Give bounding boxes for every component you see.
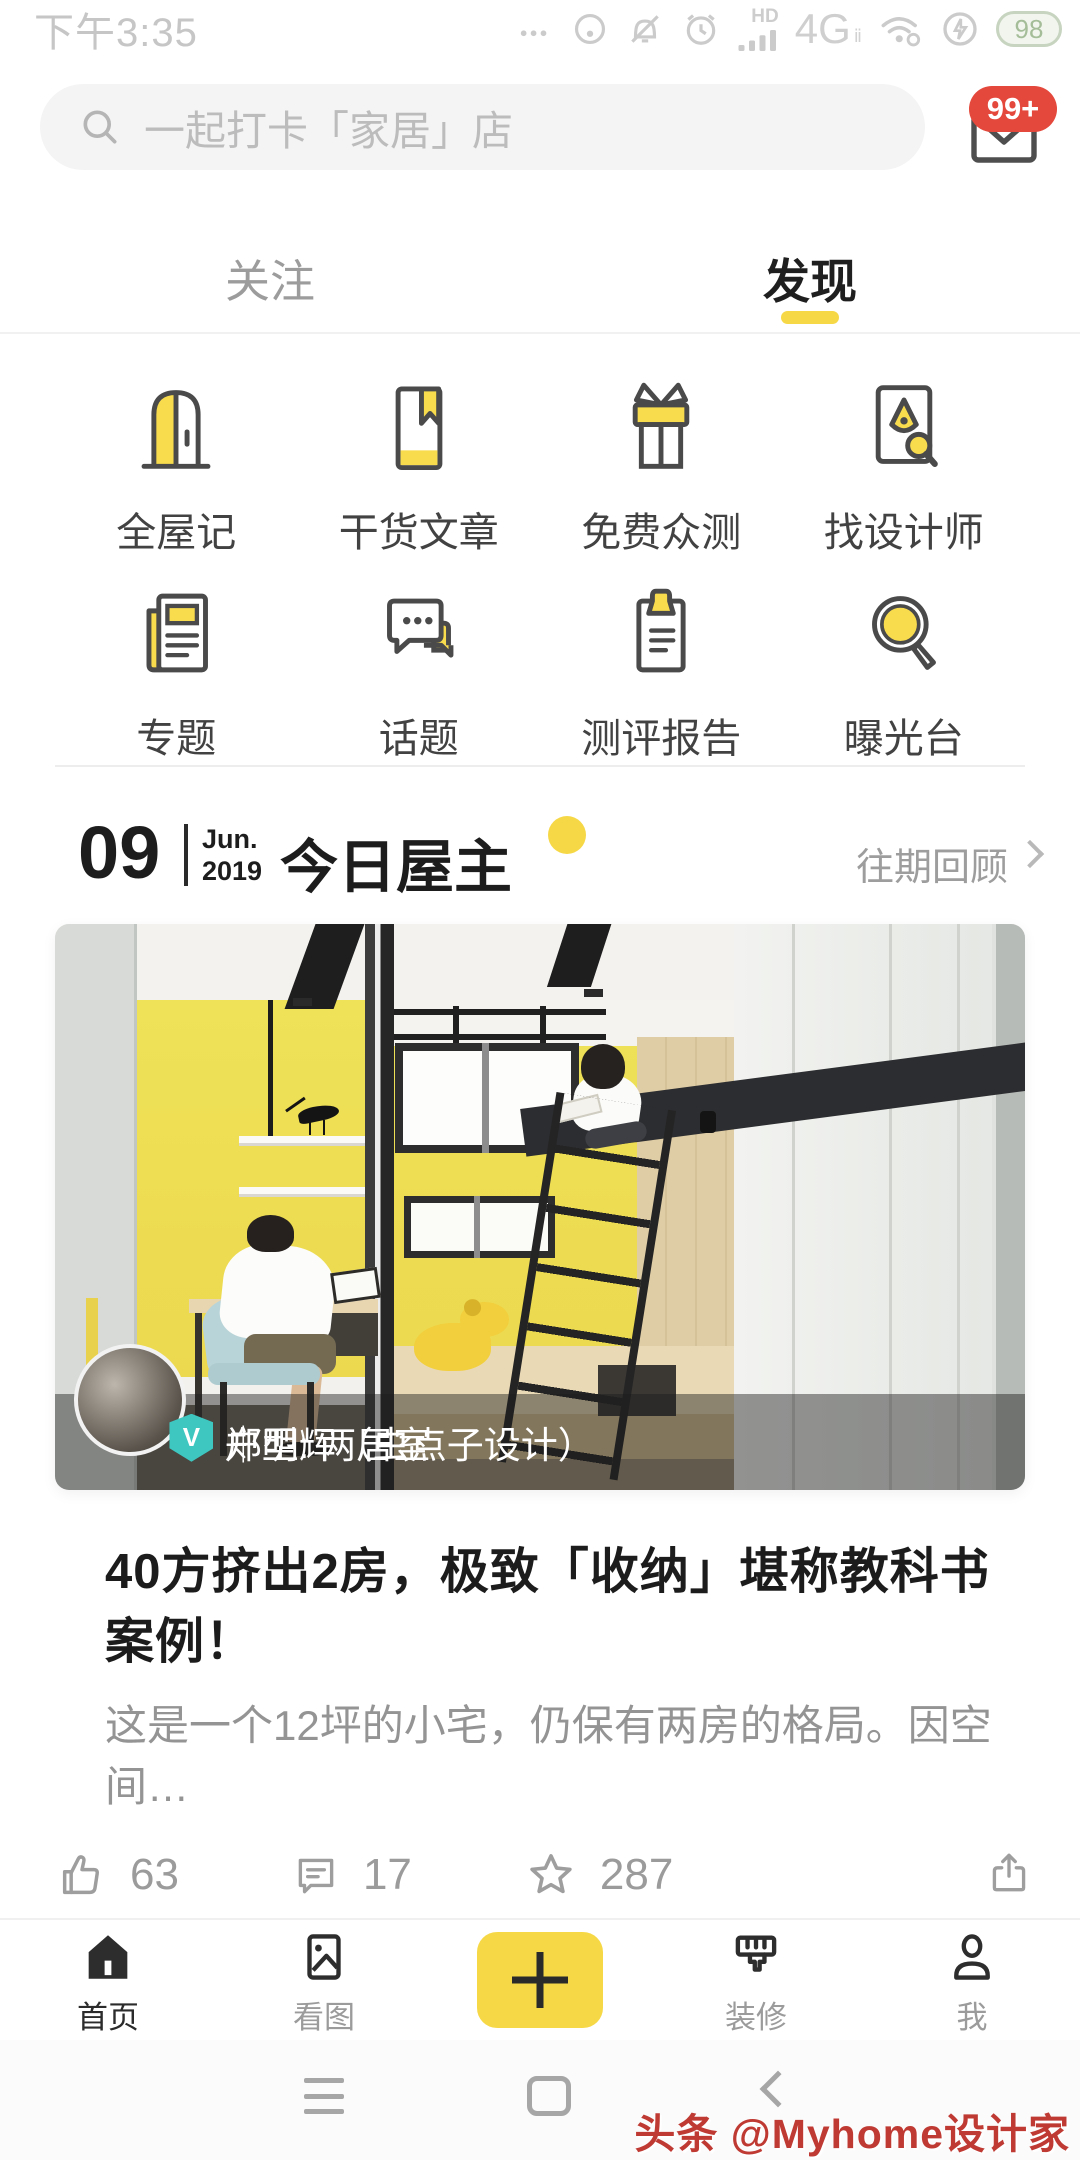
- photo-woman-hair: [581, 1044, 626, 1089]
- tab-follow[interactable]: 关注: [0, 222, 540, 332]
- photo-shelf: [239, 1187, 370, 1197]
- photo-man-hair: [247, 1215, 294, 1251]
- brush-icon: [725, 1928, 787, 1986]
- grid-item-whole-house[interactable]: 全屋记: [55, 352, 298, 558]
- topic-icon: [360, 574, 478, 692]
- post-title[interactable]: 40方挤出2房，极致「收纳」堪称教科书案例！: [105, 1538, 995, 1677]
- door-icon: [117, 368, 235, 486]
- photo-bird-leg: [323, 1120, 325, 1135]
- status-icons: HD 4G ⅱ 98: [515, 5, 1062, 53]
- share-button[interactable]: [984, 1848, 1034, 1903]
- report-icon: [602, 574, 720, 692]
- favorite-button[interactable]: 287: [524, 1848, 673, 1902]
- grid-item-articles[interactable]: 干货文章: [298, 352, 541, 558]
- hero-photo-card[interactable]: 郑明辉（虫点子设计） ｜ 户型: 两居室 V: [55, 924, 1025, 1490]
- section-year: 2019: [202, 856, 262, 887]
- mail-button[interactable]: 99+: [965, 100, 1075, 180]
- power-save-icon: [940, 9, 980, 49]
- section-day: 09: [78, 816, 160, 890]
- photo-window-mullion: [482, 1043, 489, 1153]
- photo-beam-hook: [700, 1111, 716, 1134]
- section-title: 今日屋主: [280, 820, 512, 904]
- notification-badge: 99+: [969, 86, 1057, 132]
- wifi-icon: [878, 10, 924, 48]
- signal-icon: HD: [737, 7, 779, 52]
- gift-icon: [602, 368, 720, 486]
- chevron-right-icon[interactable]: [1016, 840, 1044, 868]
- photo-bird-leg: [309, 1120, 311, 1135]
- more-dots-icon: [515, 12, 555, 46]
- photo-spot-light: [293, 998, 312, 1006]
- bottom-nav: 首页 看图 装修 我: [0, 1918, 1080, 2040]
- star-icon: [524, 1848, 578, 1902]
- menu-icon[interactable]: [304, 2078, 344, 2114]
- section-bar: [184, 824, 188, 886]
- status-bar: 下午3:35 HD 4G ⅱ 98: [0, 0, 1080, 58]
- photo-window-mullion: [474, 1196, 480, 1258]
- section-accent-dot: [548, 816, 586, 854]
- watermark: 头条 @Myhome设计家: [634, 2100, 1070, 2160]
- grid-item-find-designer[interactable]: 找设计师: [783, 352, 1026, 558]
- nav-home[interactable]: 首页: [0, 1920, 216, 2040]
- recent-square-icon[interactable]: [527, 2076, 571, 2116]
- comment-button[interactable]: 17: [291, 1850, 412, 1900]
- mute-bell-icon: [625, 10, 665, 48]
- feature-grid: 全屋记 干货文章 免费众测: [55, 352, 1025, 752]
- grid-item-free-trial[interactable]: 免费众测: [540, 352, 783, 558]
- status-time: 下午3:35: [34, 0, 198, 58]
- home-icon: [77, 1928, 139, 1986]
- gallery-icon: [293, 1928, 355, 1986]
- section-divider: [55, 765, 1025, 767]
- nav-decorate[interactable]: 装修: [648, 1920, 864, 2040]
- alarm-icon: [681, 10, 721, 48]
- thumb-up-icon: [56, 1849, 108, 1901]
- grid-item-features[interactable]: 专题: [55, 558, 298, 764]
- profile-icon: [941, 1928, 1003, 1986]
- tab-discover[interactable]: 发现: [540, 222, 1080, 332]
- feature-icon: [117, 574, 235, 692]
- grid-item-exposure[interactable]: 曝光台: [783, 558, 1026, 764]
- nav-gallery[interactable]: 看图: [216, 1920, 432, 2040]
- photo-spot-light: [584, 989, 603, 997]
- past-issues-link[interactable]: 往期回顾: [856, 836, 1008, 891]
- photo-loft-railing: [373, 1034, 606, 1040]
- share-icon: [984, 1848, 1034, 1898]
- expose-icon: [845, 574, 963, 692]
- active-tab-underline: [781, 311, 839, 324]
- app-screen: 下午3:35 HD 4G ⅱ 98 一起打卡「家居」店 99: [0, 0, 1080, 2160]
- grid-item-topics[interactable]: 话题: [298, 558, 541, 764]
- engagement-row: 63 17 287: [56, 1845, 1034, 1905]
- nav-create[interactable]: [432, 1920, 648, 2040]
- layout-meta: 户型: 两居室: [225, 1415, 431, 1469]
- battery-icon: 98: [996, 11, 1062, 47]
- section-header: 09 Jun. 2019 今日屋主 往期回顾: [0, 808, 1080, 908]
- photo-shelf: [239, 1136, 370, 1146]
- grid-item-review-reports[interactable]: 测评报告: [540, 558, 783, 764]
- photo-loft-railing: [373, 1009, 606, 1015]
- section-month: Jun.: [202, 824, 258, 855]
- tabs-divider: [0, 332, 1080, 334]
- search-placeholder: 一起打卡「家居」店: [144, 97, 513, 157]
- search-input[interactable]: 一起打卡「家居」店: [40, 84, 925, 170]
- post-excerpt: 这是一个12坪的小宅，仍保有两房的格局。因空间…: [105, 1692, 1005, 1814]
- comment-icon: [291, 1850, 341, 1900]
- hd-label: HD: [751, 7, 778, 26]
- nav-profile[interactable]: 我: [864, 1920, 1080, 2040]
- search-row: 一起打卡「家居」店 99+: [0, 78, 1080, 178]
- article-icon: [360, 368, 478, 486]
- search-icon: [78, 105, 122, 149]
- photo-pendant-lamp: [268, 1000, 272, 1142]
- top-tabs: 关注 发现: [0, 222, 1080, 332]
- data-saver-icon: [571, 10, 609, 48]
- plus-icon[interactable]: [477, 1932, 603, 2028]
- like-button[interactable]: 63: [56, 1849, 179, 1901]
- designer-icon: [845, 368, 963, 486]
- network-indicator: 4G ⅱ: [795, 5, 862, 53]
